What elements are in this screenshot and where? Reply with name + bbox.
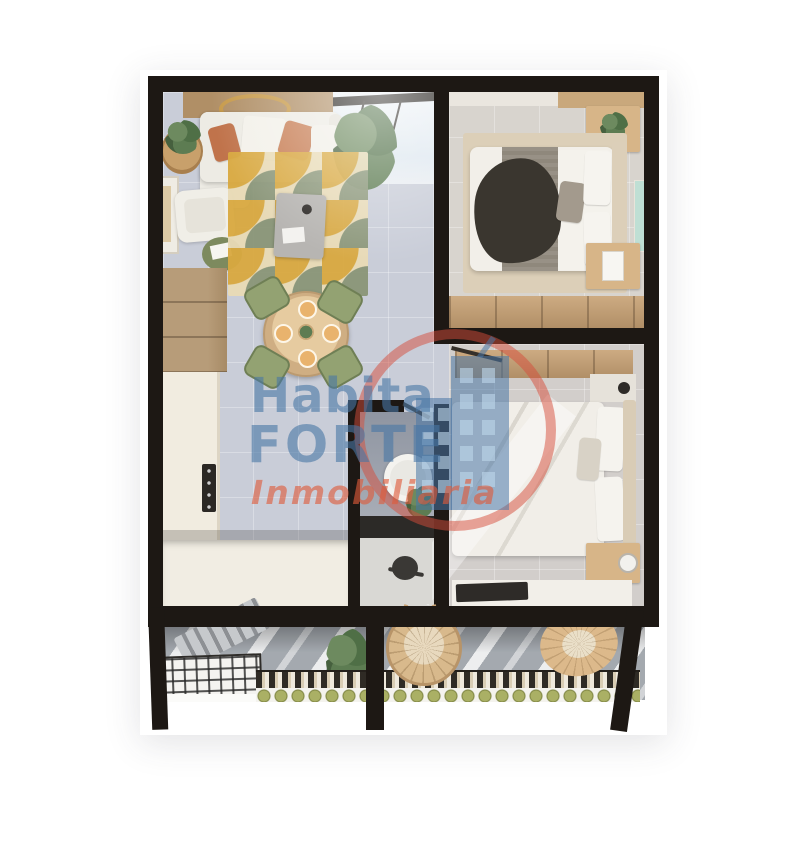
potted-plant [165, 120, 201, 154]
ground-slab [150, 702, 650, 732]
balcony-beam [148, 606, 659, 627]
vase [302, 204, 313, 215]
white-pillow [594, 476, 625, 541]
floorplan-render: Habita FORTE Inmobiliaria [0, 0, 800, 841]
magazine [282, 227, 305, 244]
armchair-seat [184, 196, 227, 233]
stove [202, 464, 216, 512]
brand-name-line3: Inmobiliaria [251, 476, 498, 509]
placemat [322, 324, 341, 343]
outer-wall-right [644, 76, 659, 627]
basket-side-table [161, 128, 203, 174]
wall-art-canvas [162, 186, 171, 242]
placemat [298, 349, 317, 368]
bedroom2-shelf [590, 374, 636, 402]
bed2-headboard [623, 400, 636, 560]
centerpiece-plant [298, 324, 314, 340]
shower-floor [362, 538, 432, 604]
lamp [618, 382, 630, 394]
brand-name-line2: FORTE [247, 420, 447, 471]
outer-wall-left [148, 76, 163, 627]
kitchen-cabinet [163, 268, 227, 372]
white-pillow [583, 151, 612, 206]
outer-wall-top [148, 76, 659, 92]
lamp [618, 553, 638, 573]
placemat [274, 324, 293, 343]
nightstand [586, 243, 640, 289]
center-wall-upper [434, 92, 449, 344]
window-frame-bar [318, 92, 434, 107]
coffee-table [273, 193, 326, 260]
brand-name-line1: Habita [250, 372, 435, 420]
nightstand [586, 543, 640, 583]
armchair [174, 187, 236, 244]
balcony-post-center [366, 624, 384, 730]
placemat [298, 300, 317, 319]
gray-pillow [555, 180, 586, 223]
accent-pillow [576, 437, 602, 481]
framed-print [602, 251, 624, 281]
counter-shadow [163, 530, 349, 540]
laptop [456, 582, 529, 603]
